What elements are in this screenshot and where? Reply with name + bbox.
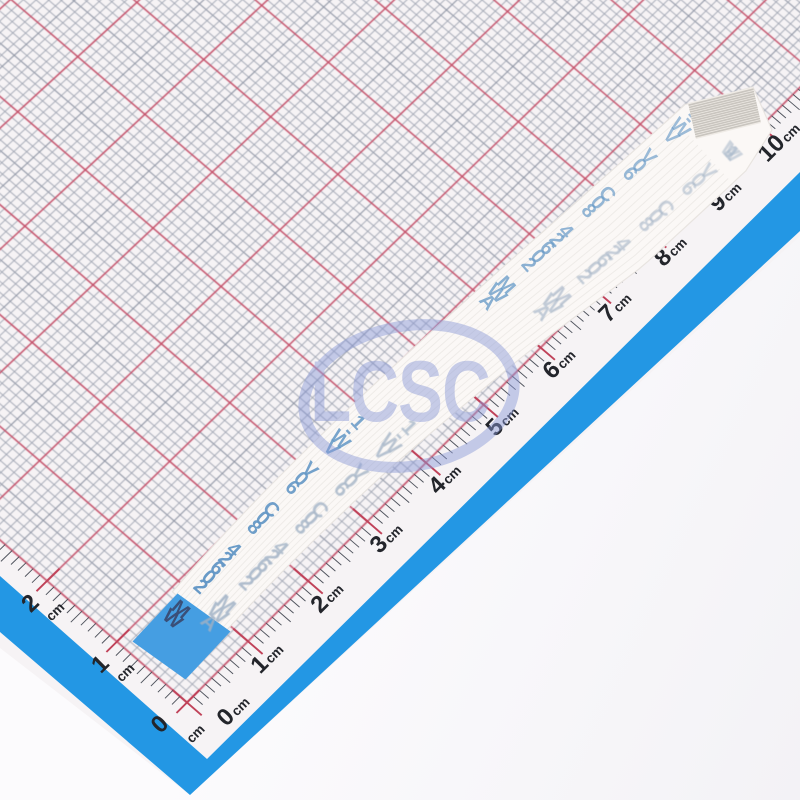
svg-text:LCSC: LCSC [310, 344, 489, 440]
